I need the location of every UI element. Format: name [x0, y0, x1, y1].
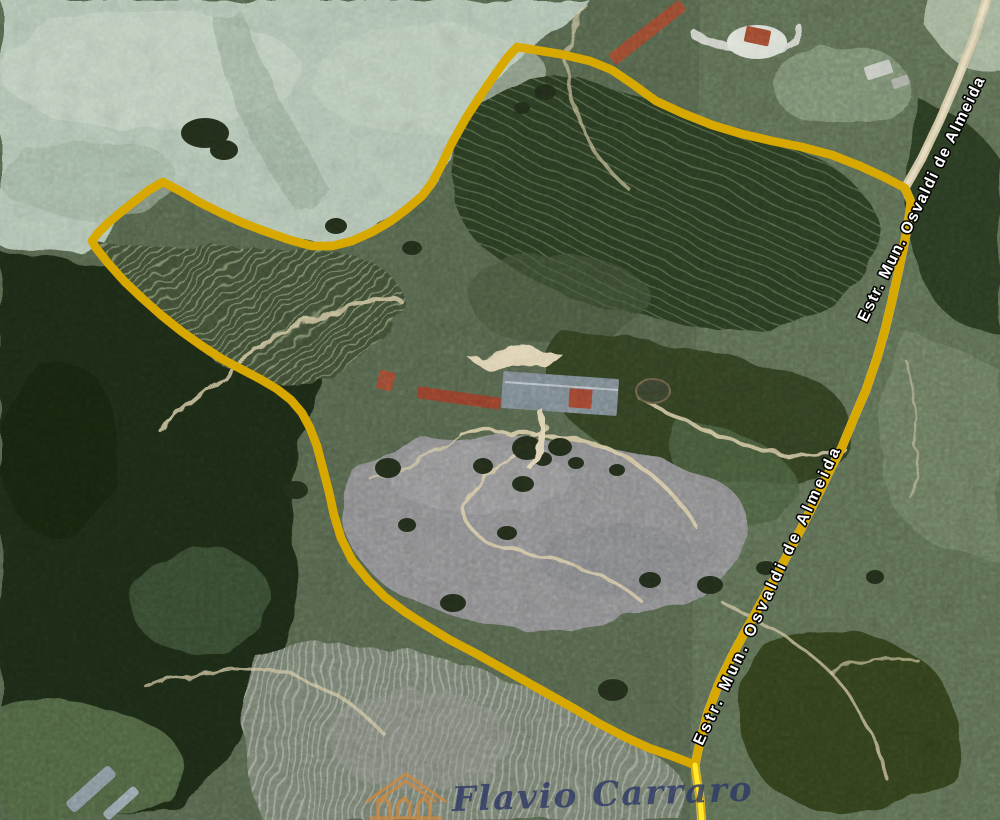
map-canvas[interactable]: Estr. Mun. Osvaldi de Almeida Estr. Mun.…	[0, 0, 1000, 820]
terrain-layer	[0, 0, 1000, 820]
satellite-map-screenshot: Estr. Mun. Osvaldi de Almeida Estr. Mun.…	[0, 0, 1000, 820]
imagery-noise-coarse	[0, 0, 1000, 820]
